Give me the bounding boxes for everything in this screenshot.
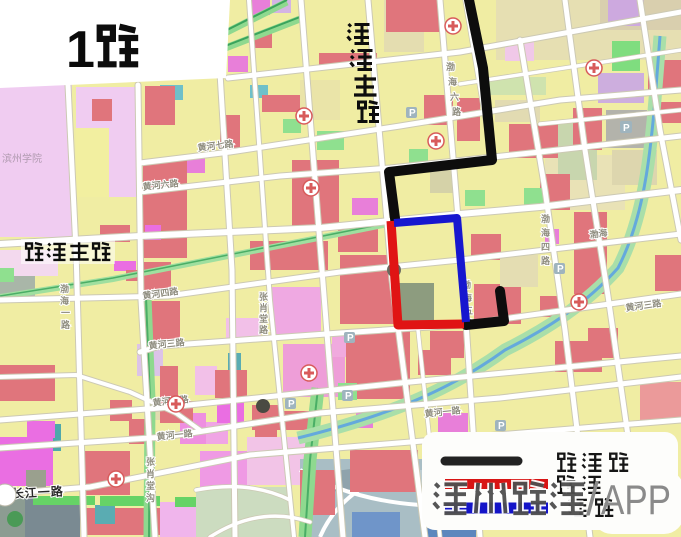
svg-text:长江一路: 长江一路 bbox=[11, 483, 64, 501]
svg-text:P: P bbox=[623, 123, 630, 134]
svg-text:APP: APP bbox=[601, 476, 671, 523]
svg-text:P: P bbox=[288, 399, 295, 410]
svg-text:P: P bbox=[498, 421, 505, 432]
svg-text:P: P bbox=[345, 391, 352, 402]
svg-text:/: / bbox=[586, 473, 599, 525]
svg-text:1: 1 bbox=[66, 21, 95, 79]
svg-text:P: P bbox=[557, 264, 564, 275]
svg-text:滨州学院: 滨州学院 bbox=[2, 152, 42, 165]
svg-text:P: P bbox=[347, 333, 354, 344]
svg-text:P: P bbox=[409, 108, 416, 119]
